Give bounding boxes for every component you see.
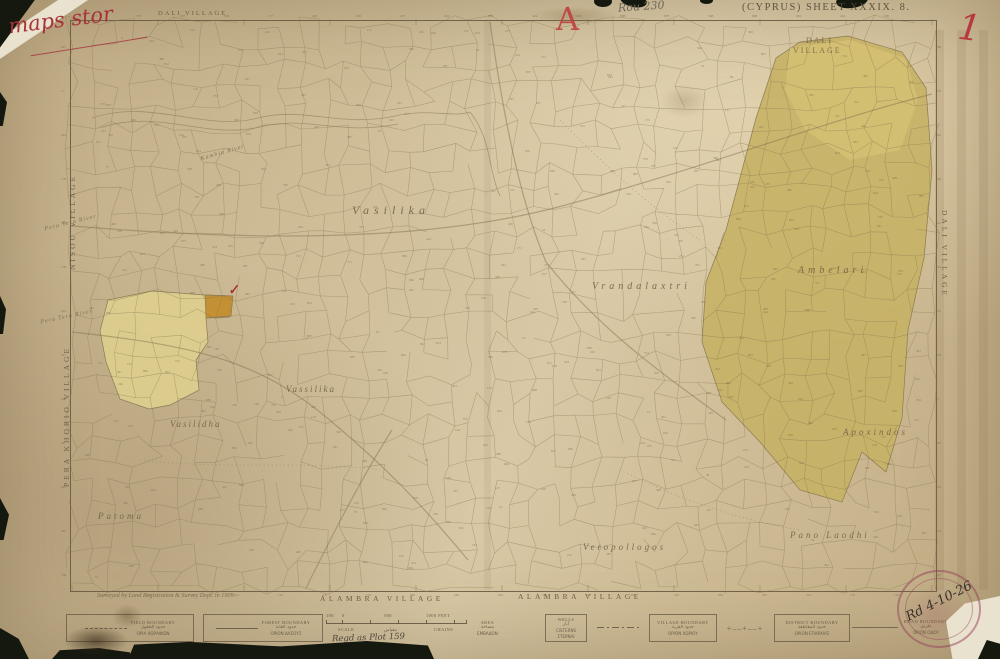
scale-label: 1000 FEET (426, 613, 450, 618)
legend-entry: WELLSآبارCISTERNSΣΤΕΡΝΑΙ (545, 614, 587, 642)
legend-entry: AREAمساحةΕΜΒΑΔΟΝ (477, 616, 527, 640)
legend-text: ΟΡΙΟΝ ΕΠΑΡΧΙΑΣ (795, 631, 830, 636)
legend-symbol-crosses: +‒‒+‒‒+ (722, 627, 768, 631)
legend-entry: FOREST BOUNDARYحدود الغابةΟΡΙΟΝ ΔΑΣΟΥΣ (203, 614, 323, 642)
scale-label: 500 (384, 613, 392, 618)
registry-stamp: Rd 4-10-26 (897, 570, 981, 648)
legend-symbol-solid (216, 628, 258, 629)
legend-text: ΟΡΙΟΝ ΔΑΣΟΥΣ (271, 631, 302, 636)
scale-label: 100 (326, 613, 334, 618)
regd-plot-note: Regd as Plot 159 (332, 632, 405, 645)
scale-label: CHAINS (434, 627, 453, 632)
legend-text: ΣΤΕΡΝΑΙ (557, 634, 574, 639)
legend-layer: Regd as Plot 159 FIELD BOUNDARYحدود الحق… (0, 0, 1000, 659)
legend-text: ΟΡΙΟΝ ΧΩΡΙΟΥ (668, 631, 698, 636)
legend-symbol-dashdot (597, 627, 639, 628)
legend-entry: DISTRICT BOUNDARYحدود المقاطعةΟΡΙΟΝ ΕΠΑΡ… (774, 614, 850, 642)
legend-text: ΕΜΒΑΔΟΝ (477, 631, 498, 636)
legend-entry: FIELD BOUNDARYحدود الحقولΟΡΙΑ ΧΩΡΑΦΙΩΝ (66, 614, 194, 642)
legend-text: ΟΡΙΑ ΧΩΡΑΦΙΩΝ (137, 631, 170, 636)
legend-entry: VILLAGE BOUNDARYحدود القريةΟΡΙΟΝ ΧΩΡΙΟΥ (649, 614, 717, 642)
scale-label: SCALE (338, 627, 354, 632)
scale-label: 0 (342, 613, 345, 618)
map-scan: 5256099333119976855334652316544167963607… (0, 0, 1000, 659)
legend-symbol-line (852, 627, 898, 628)
scale-label: مقياس (384, 627, 397, 633)
legend-symbol-dash (85, 628, 127, 629)
